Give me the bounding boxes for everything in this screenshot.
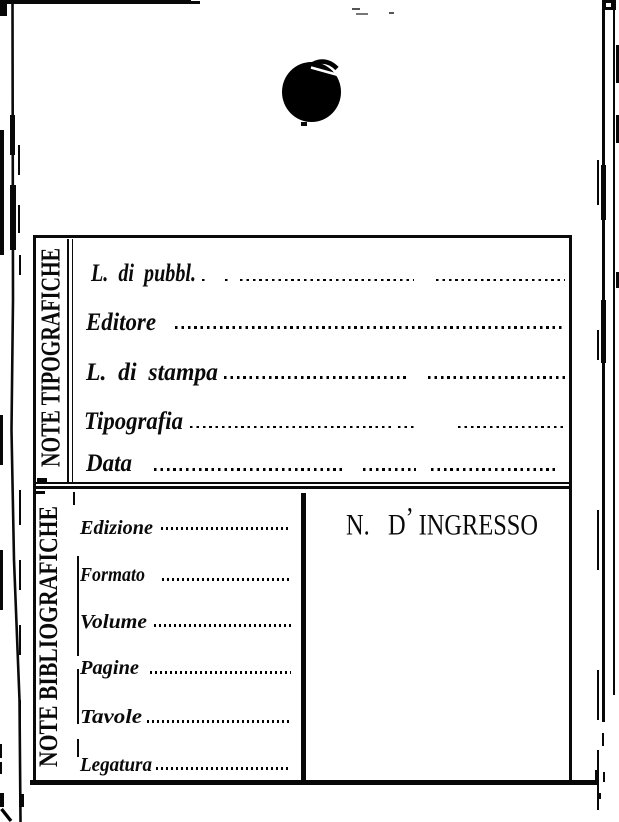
svg-text:Volume: Volume <box>80 611 147 633</box>
svg-text:Pagine: Pagine <box>79 657 139 679</box>
svg-text:Legatura: Legatura <box>79 754 152 776</box>
svg-text:L. di pubbl.: L. di pubbl. <box>90 260 196 287</box>
svg-text:Formato: Formato <box>79 564 145 586</box>
svg-text:Edizione: Edizione <box>79 517 153 539</box>
svg-text:L. di stampa: L. di stampa <box>85 359 218 386</box>
svg-text:Editore: Editore <box>85 309 156 336</box>
svg-text:Tavole: Tavole <box>80 706 142 728</box>
svg-text:Tipografia: Tipografia <box>84 408 183 435</box>
svg-text:NOTE TIPOGRAFICHE: NOTE TIPOGRAFICHE <box>36 248 66 467</box>
svg-text:Data: Data <box>85 450 132 477</box>
svg-text:NOTE BIBLIOGRAFICHE: NOTE BIBLIOGRAFICHE <box>34 506 63 767</box>
svg-text:N. D’ INGRESSO: N. D’ INGRESSO <box>346 502 538 542</box>
